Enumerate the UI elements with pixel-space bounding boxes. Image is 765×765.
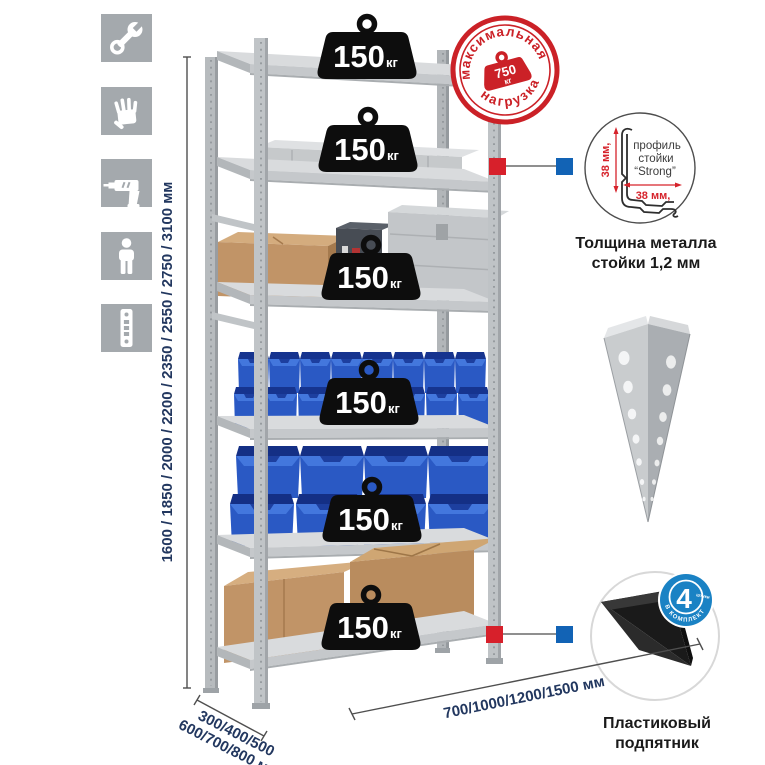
side-brace xyxy=(212,312,254,329)
perforated-profile-icon xyxy=(101,304,152,352)
profile-detail: 38 мм, 38 мм, профиль стойки “Strong” xyxy=(585,113,695,223)
marker-red-top xyxy=(489,158,506,175)
profile-label-3: “Strong” xyxy=(634,166,676,178)
corner-post-image xyxy=(604,316,690,522)
bin xyxy=(455,352,486,393)
side-brace xyxy=(212,214,254,231)
gloves-icon xyxy=(101,87,152,135)
rack-post-front-left xyxy=(252,38,270,709)
max-load-stamp: максимальная нагрузка 750 кг xyxy=(441,6,568,133)
bin xyxy=(269,352,300,393)
infographic-canvas: 150 кг xyxy=(0,0,765,765)
bin xyxy=(424,352,455,393)
marker-red-bottom xyxy=(486,626,503,643)
feature-icons xyxy=(101,14,152,352)
callout-bottom xyxy=(486,626,573,643)
product-infographic: 150 кг xyxy=(0,0,765,765)
shelf-load-badge xyxy=(319,110,418,173)
bin xyxy=(364,446,428,498)
marker-blue-top xyxy=(556,158,573,175)
profile-label-2: стойки xyxy=(638,153,673,165)
foot-caption-line1: Пластиковый xyxy=(603,715,711,732)
svg-text:38 мм,: 38 мм, xyxy=(636,190,671,202)
included-count: 4 xyxy=(676,583,692,614)
foot-caption-line2: подпятник xyxy=(615,735,700,752)
depth-dimension: 300/400/500 600/700/800 мм xyxy=(176,695,289,765)
svg-text:38 мм,: 38 мм, xyxy=(600,143,612,178)
height-dimension: 1600 / 1850 / 2000 / 2200 / 2350 / 2550 … xyxy=(159,57,191,688)
person-icon xyxy=(101,232,152,280)
profile-caption-line1: Толщина металла xyxy=(575,235,716,252)
drill-icon xyxy=(101,159,152,208)
rack-post-front-right xyxy=(486,45,503,664)
bin xyxy=(428,446,492,498)
rack-post-back-left xyxy=(203,57,219,693)
wrench-icon xyxy=(101,14,152,62)
height-values: 1600 / 1850 / 2000 / 2200 / 2350 / 2550 … xyxy=(159,182,176,563)
profile-label-1: профиль xyxy=(633,140,681,152)
profile-caption-line2: стойки 1,2 мм xyxy=(592,255,701,272)
callout-top xyxy=(489,158,573,175)
bin xyxy=(300,446,364,498)
marker-blue-bottom xyxy=(556,626,573,643)
included-badge: 4 штуки в комплекте xyxy=(658,572,714,628)
bin xyxy=(300,352,331,393)
width-values: 700/1000/1200/1500 мм xyxy=(442,673,606,722)
shelf-load-badge xyxy=(318,17,417,80)
